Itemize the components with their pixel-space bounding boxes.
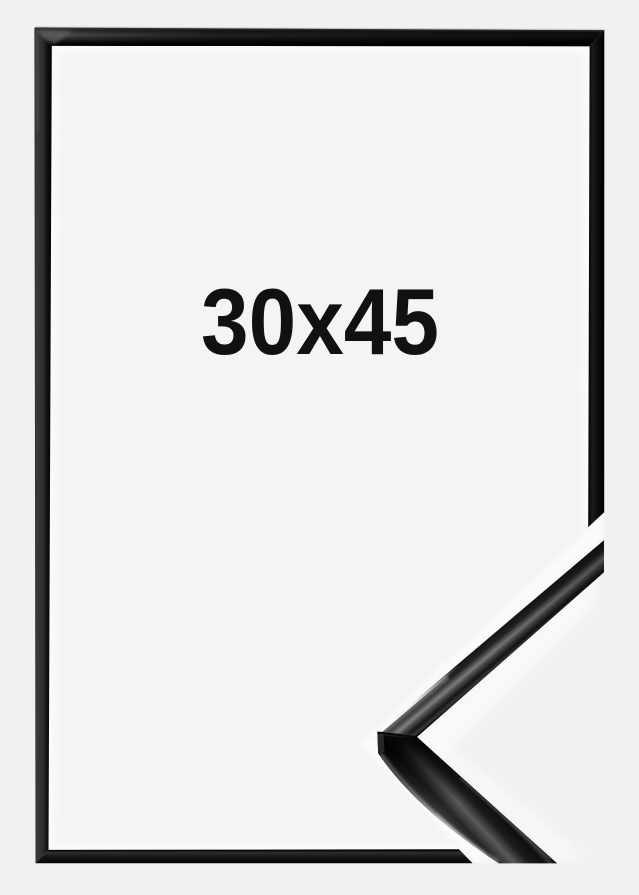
svg-text:30x45: 30x45 [201,269,439,374]
